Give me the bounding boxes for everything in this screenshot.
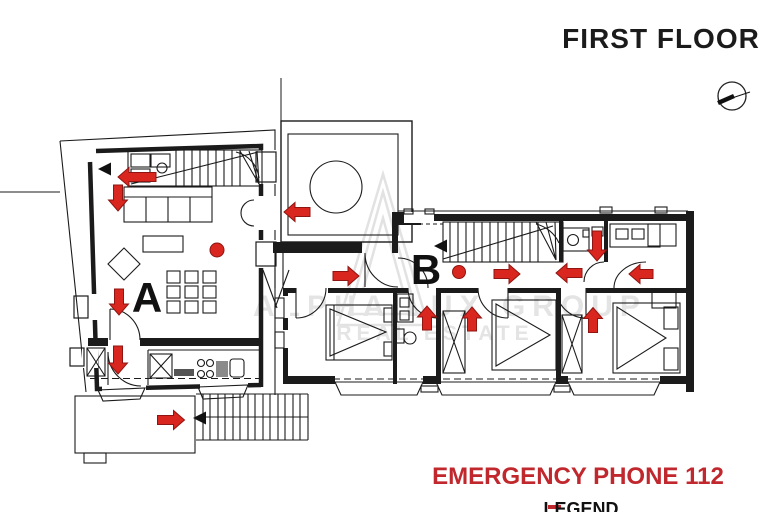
evacuation-dot <box>453 266 466 279</box>
dining-set <box>167 271 216 313</box>
floor-plan-page: ALPHA LUX GROUP REAL ESTATE <box>0 0 768 512</box>
staircase-b <box>443 222 563 262</box>
window-boxes-a <box>70 152 276 366</box>
evacuation-arrow-down <box>588 231 607 261</box>
evacuation-arrow-right <box>158 411 185 430</box>
evacuation-arrow-left <box>556 264 582 283</box>
floor-plan-svg: ALPHA LUX GROUP REAL ESTATE <box>0 0 768 512</box>
evacuation-arrow-left <box>629 265 653 284</box>
exterior-stairs <box>196 394 308 440</box>
terrace <box>75 396 195 463</box>
sofa <box>124 187 212 222</box>
evacuation-dot <box>210 243 224 257</box>
floor-plan-linework <box>0 78 694 463</box>
coffee-table <box>143 236 183 252</box>
evacuation-arrow-down <box>110 289 129 315</box>
evacuation-arrow-down <box>109 346 128 374</box>
stair-direction-triangle <box>98 163 111 176</box>
courtyard-tree <box>310 161 362 213</box>
zone-a-label: A <box>132 274 162 321</box>
page-title: FIRST FLOOR <box>562 23 760 54</box>
wardrobe-3 <box>562 315 582 373</box>
legend-title: LEGEND <box>543 499 618 512</box>
emergency-phone-text: EMERGENCY PHONE 112 <box>432 463 724 490</box>
north-arrow-icon <box>718 82 750 110</box>
watermark-text-2: REAL ESTATE <box>336 322 533 345</box>
zone-b-label: B <box>411 246 441 293</box>
evacuation-arrow-down <box>109 185 128 211</box>
evacuation-arrow-right <box>494 265 520 284</box>
